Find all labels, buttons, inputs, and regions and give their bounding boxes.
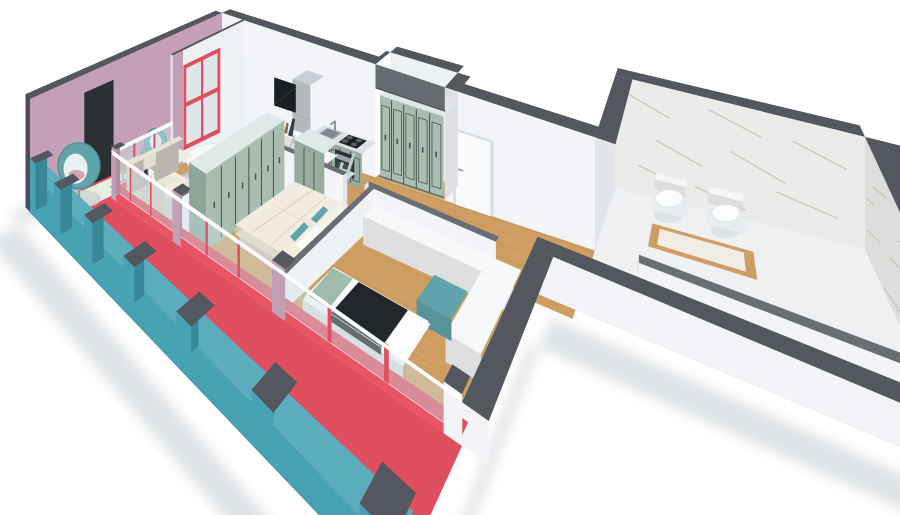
floorplan-stage <box>0 0 900 515</box>
floorplan-3d-render <box>0 0 900 515</box>
entry-nook <box>371 47 470 201</box>
